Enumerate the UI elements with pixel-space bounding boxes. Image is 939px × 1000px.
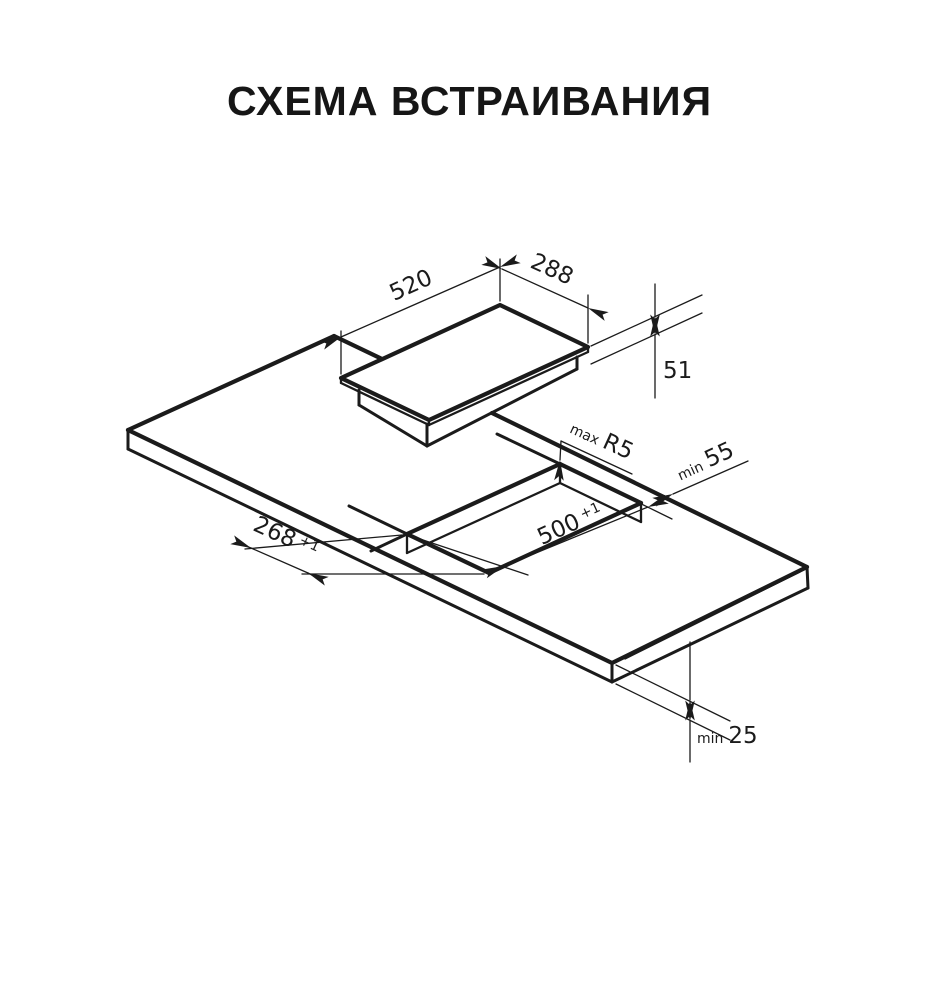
overshoot: [243, 545, 251, 548]
dimension-line: [251, 548, 308, 573]
hob-height-label: 51: [663, 358, 692, 384]
worktop-right-vertical-edge: [807, 567, 808, 588]
dimension-hob-height: 51: [591, 284, 702, 398]
page: СХЕМА ВСТРАИВАНИЯ: [0, 0, 939, 1000]
back-clearance-label: min55: [672, 437, 738, 486]
dimension-back-clearance: min55: [672, 437, 748, 494]
hob-length-label: 520: [386, 265, 437, 307]
worktop-thickness-label: min25: [697, 723, 758, 749]
installation-diagram: 520 288 51 maxR5: [0, 0, 939, 1000]
